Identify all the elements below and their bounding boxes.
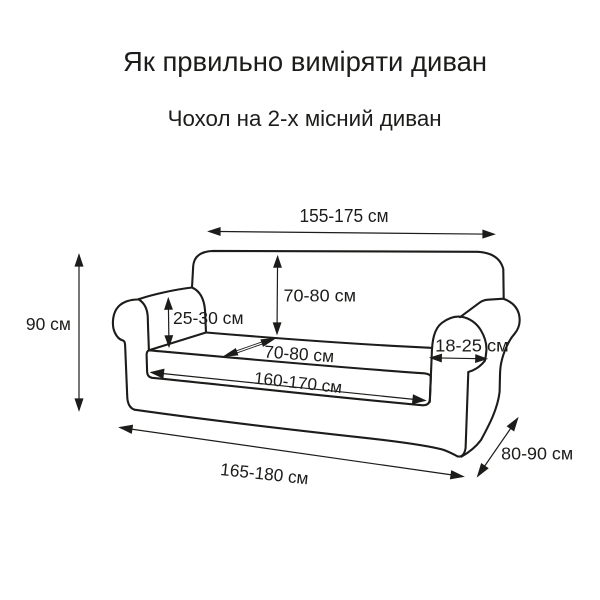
svg-text:80-90 см: 80-90 см <box>501 443 573 463</box>
svg-text:18-25 см: 18-25 см <box>435 336 509 356</box>
svg-text:Як првильно виміряти диван: Як првильно виміряти диван <box>123 46 487 77</box>
svg-text:70-80 см: 70-80 см <box>284 286 357 306</box>
svg-text:90 см: 90 см <box>26 314 71 334</box>
svg-text:25-30 см: 25-30 см <box>173 308 244 328</box>
svg-text:Чохол на 2-х місний диван: Чохол на 2-х місний диван <box>168 106 442 131</box>
svg-text:155-175 см: 155-175 см <box>300 206 389 226</box>
